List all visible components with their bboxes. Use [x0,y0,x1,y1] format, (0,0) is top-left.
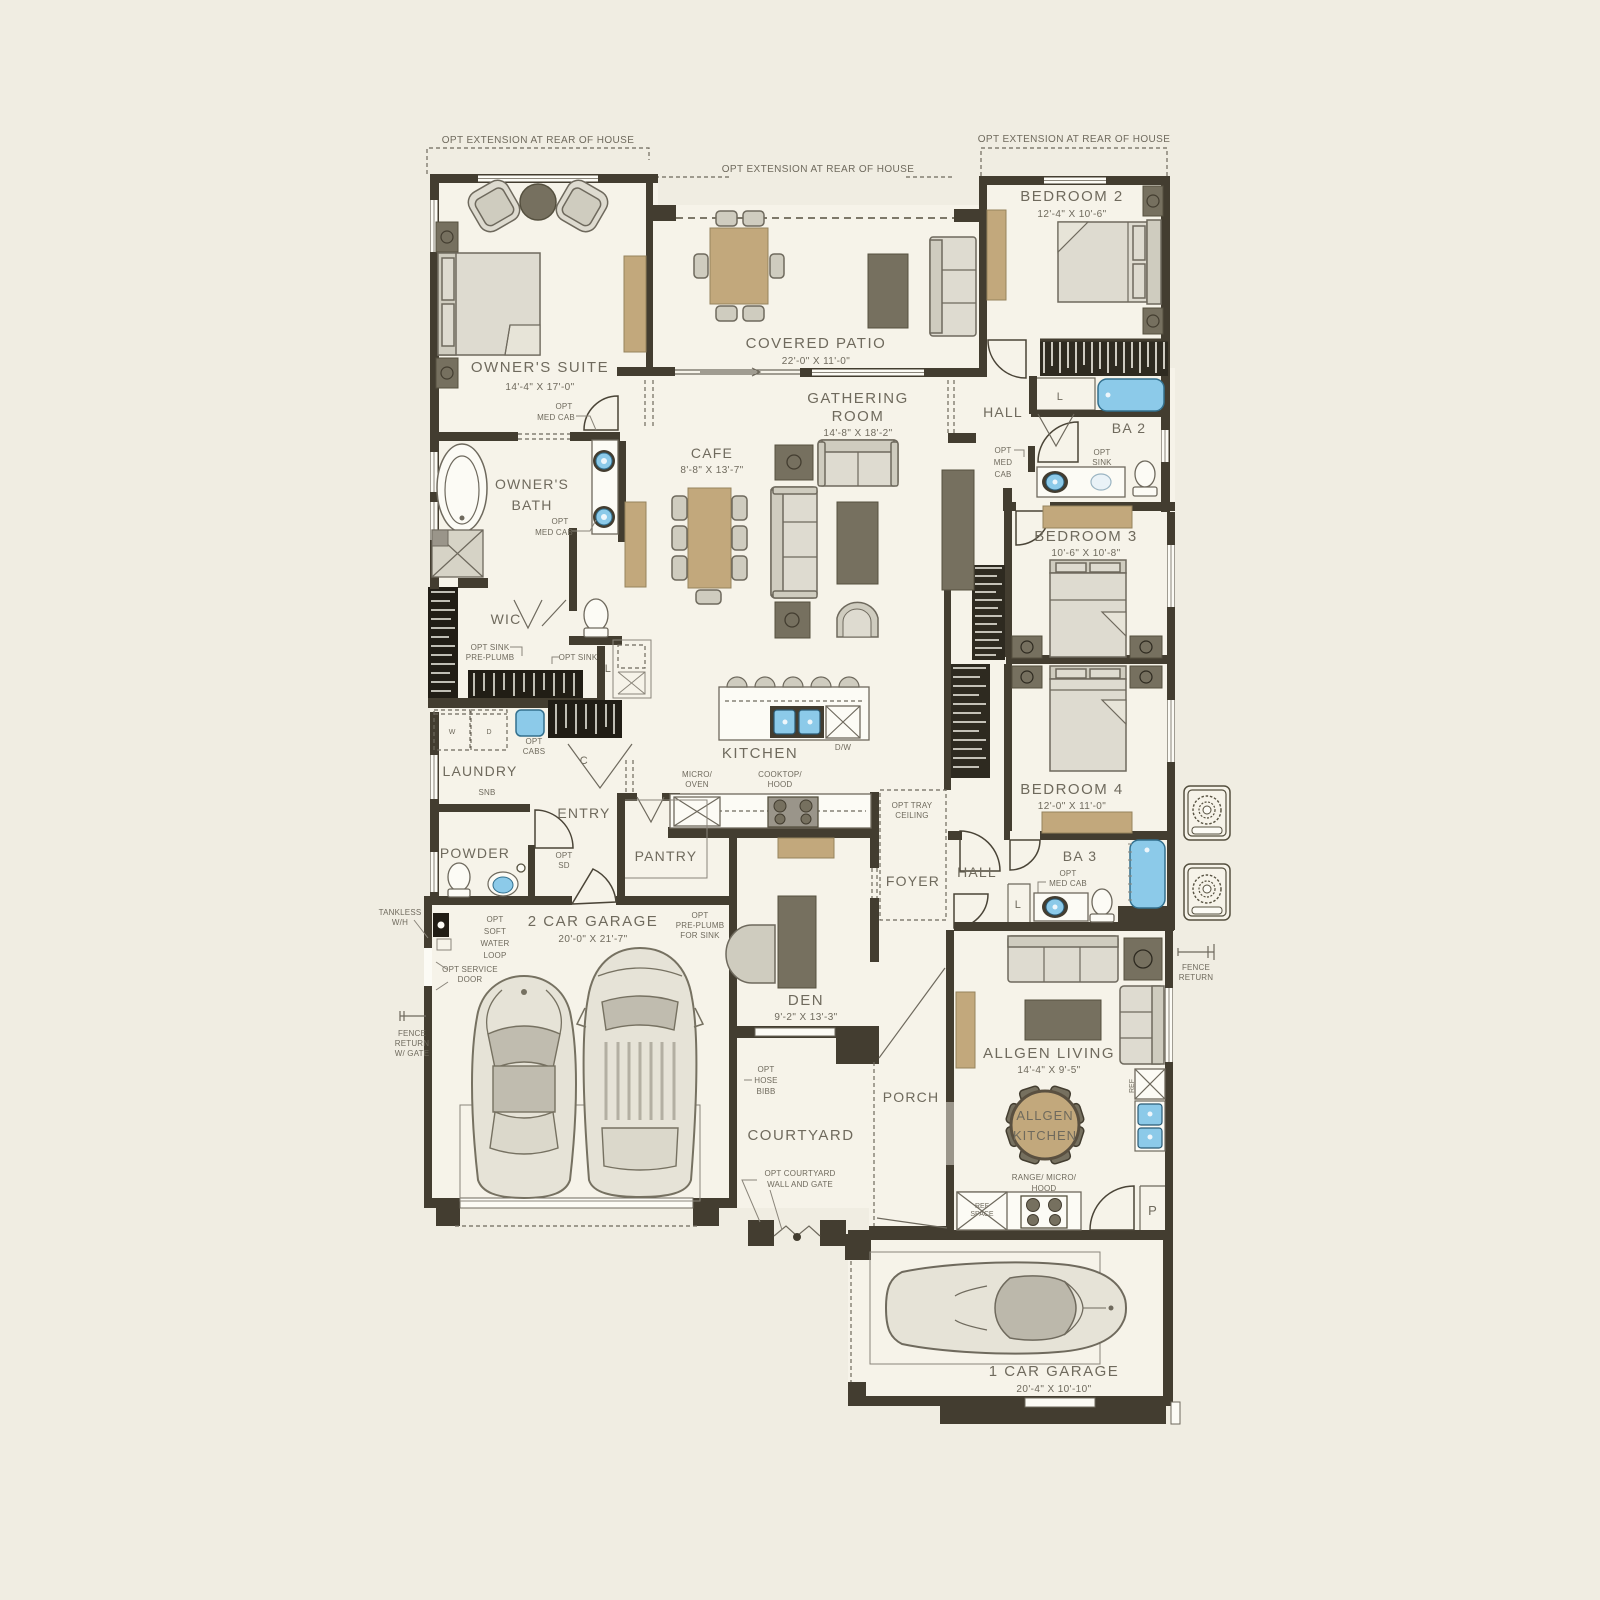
svg-text:OPT: OPT [691,911,708,920]
svg-text:PRE-PLUMB: PRE-PLUMB [466,653,514,662]
svg-text:SINK: SINK [1092,458,1112,467]
svg-text:REF: REF [1129,1079,1136,1093]
svg-text:OVEN: OVEN [685,780,708,789]
svg-text:BA 3: BA 3 [1063,848,1097,864]
svg-text:LAUNDRY: LAUNDRY [442,763,517,779]
svg-text:OPT: OPT [525,737,542,746]
svg-text:OPT SINK: OPT SINK [471,643,510,652]
svg-text:14'-8" X 18'-2": 14'-8" X 18'-2" [823,428,892,439]
svg-text:CEILING: CEILING [895,811,928,820]
svg-text:OPT SERVICE: OPT SERVICE [442,965,498,974]
svg-text:P: P [1148,1203,1158,1218]
svg-text:GATHERING: GATHERING [807,390,909,407]
svg-text:OPT EXTENSION AT REAR OF HOUSE: OPT EXTENSION AT REAR OF HOUSE [722,164,915,175]
svg-text:D: D [486,729,491,736]
svg-text:OWNER'S SUITE: OWNER'S SUITE [471,359,609,376]
svg-text:POWDER: POWDER [440,845,510,861]
svg-text:20'-4" X 10'-10": 20'-4" X 10'-10" [1016,1384,1091,1395]
svg-text:OWNER'S: OWNER'S [495,476,569,492]
svg-text:ROOM: ROOM [832,408,885,425]
svg-text:FOR SINK: FOR SINK [680,931,720,940]
svg-text:1 CAR GARAGE: 1 CAR GARAGE [989,1363,1120,1380]
svg-text:TANKLESS: TANKLESS [379,908,422,917]
svg-text:SNB: SNB [478,788,495,797]
svg-text:10'-6" X 10'-8": 10'-6" X 10'-8" [1051,548,1120,559]
svg-text:SOFT: SOFT [484,927,506,936]
svg-text:KITCHEN: KITCHEN [722,745,798,762]
svg-text:PORCH: PORCH [883,1089,940,1105]
svg-text:BIBB: BIBB [756,1087,775,1096]
svg-text:OPT EXTENSION AT REAR OF HOUSE: OPT EXTENSION AT REAR OF HOUSE [978,134,1171,145]
svg-text:PANTRY: PANTRY [635,848,698,864]
svg-text:DOOR: DOOR [458,975,483,984]
svg-text:SPACE: SPACE [970,1211,994,1218]
svg-text:W/ GATE: W/ GATE [395,1049,430,1058]
svg-text:REF: REF [975,1203,989,1210]
svg-text:OPT SINK: OPT SINK [559,653,598,662]
svg-text:WATER: WATER [481,939,510,948]
svg-text:L: L [1057,391,1064,403]
svg-text:MED: MED [994,458,1012,467]
svg-text:L: L [605,663,612,675]
svg-text:COURTYARD: COURTYARD [747,1127,854,1144]
svg-text:BATH: BATH [511,497,552,513]
svg-text:OPT: OPT [555,851,572,860]
svg-text:22'-0" X 11'-0": 22'-0" X 11'-0" [782,356,850,367]
svg-text:OPT: OPT [1093,448,1110,457]
svg-text:PRE-PLUMB: PRE-PLUMB [676,921,724,930]
svg-text:RETURN: RETURN [1179,973,1214,982]
svg-text:MED CAB: MED CAB [1049,879,1087,888]
svg-text:RANGE/ MICRO/: RANGE/ MICRO/ [1012,1173,1077,1182]
svg-text:9'-2" X 13'-3": 9'-2" X 13'-3" [774,1012,837,1023]
svg-text:COVERED PATIO: COVERED PATIO [746,335,887,352]
svg-text:BEDROOM 3: BEDROOM 3 [1034,528,1138,545]
svg-text:ALLGEN LIVING: ALLGEN LIVING [983,1045,1115,1062]
svg-text:COOKTOP/: COOKTOP/ [758,770,802,779]
svg-text:KITCHEN: KITCHEN [1013,1128,1077,1143]
svg-text:CABS: CABS [523,747,546,756]
svg-text:FOYER: FOYER [886,873,940,889]
svg-text:BEDROOM 4: BEDROOM 4 [1020,781,1124,798]
svg-text:W/H: W/H [392,918,408,927]
svg-text:OPT: OPT [486,915,503,924]
svg-text:DEN: DEN [788,992,824,1009]
svg-text:HALL: HALL [983,404,1023,420]
svg-text:HOOD: HOOD [768,780,793,789]
svg-text:12'-4" X 10'-6": 12'-4" X 10'-6" [1037,209,1106,220]
svg-text:12'-0" X 11'-0": 12'-0" X 11'-0" [1038,801,1106,812]
svg-text:FENCE: FENCE [398,1029,426,1038]
svg-text:D/W: D/W [835,743,851,752]
svg-text:OPT TRAY: OPT TRAY [892,801,933,810]
svg-text:OPT: OPT [994,446,1011,455]
svg-text:OPT: OPT [555,402,572,411]
svg-text:LOOP: LOOP [483,951,506,960]
svg-text:2 CAR GARAGE: 2 CAR GARAGE [528,913,659,930]
svg-text:L: L [1015,899,1022,911]
svg-text:WALL AND GATE: WALL AND GATE [767,1180,833,1189]
svg-text:OPT: OPT [551,517,568,526]
svg-text:W: W [449,729,456,736]
svg-text:SD: SD [558,861,570,870]
svg-text:ENTRY: ENTRY [557,805,610,821]
svg-text:CAB: CAB [994,470,1011,479]
svg-text:8'-8" X 13'-7": 8'-8" X 13'-7" [680,465,743,476]
svg-text:OPT: OPT [1059,869,1076,878]
svg-text:WIC: WIC [491,611,522,627]
svg-text:RETURN: RETURN [395,1039,430,1048]
svg-text:20'-0" X 21'-7": 20'-0" X 21'-7" [558,934,627,945]
svg-text:FENCE: FENCE [1182,963,1210,972]
svg-text:CAFE: CAFE [691,445,733,461]
svg-text:ALLGEN: ALLGEN [1016,1108,1073,1123]
svg-text:MICRO/: MICRO/ [682,770,713,779]
svg-text:MED CAB: MED CAB [535,528,573,537]
svg-text:C: C [580,755,588,767]
svg-text:HOSE: HOSE [754,1076,777,1085]
svg-text:14'-4" X 17'-0": 14'-4" X 17'-0" [505,382,574,393]
svg-text:BA 2: BA 2 [1112,420,1146,436]
svg-text:OPT: OPT [757,1065,774,1074]
svg-text:MED CAB: MED CAB [537,413,575,422]
svg-text:HALL: HALL [957,864,997,880]
svg-text:14'-4" X 9'-5": 14'-4" X 9'-5" [1017,1065,1080,1076]
svg-text:BEDROOM 2: BEDROOM 2 [1020,188,1124,205]
svg-text:OPT EXTENSION AT REAR OF HOUSE: OPT EXTENSION AT REAR OF HOUSE [442,135,635,146]
svg-text:OPT COURTYARD: OPT COURTYARD [764,1169,835,1178]
